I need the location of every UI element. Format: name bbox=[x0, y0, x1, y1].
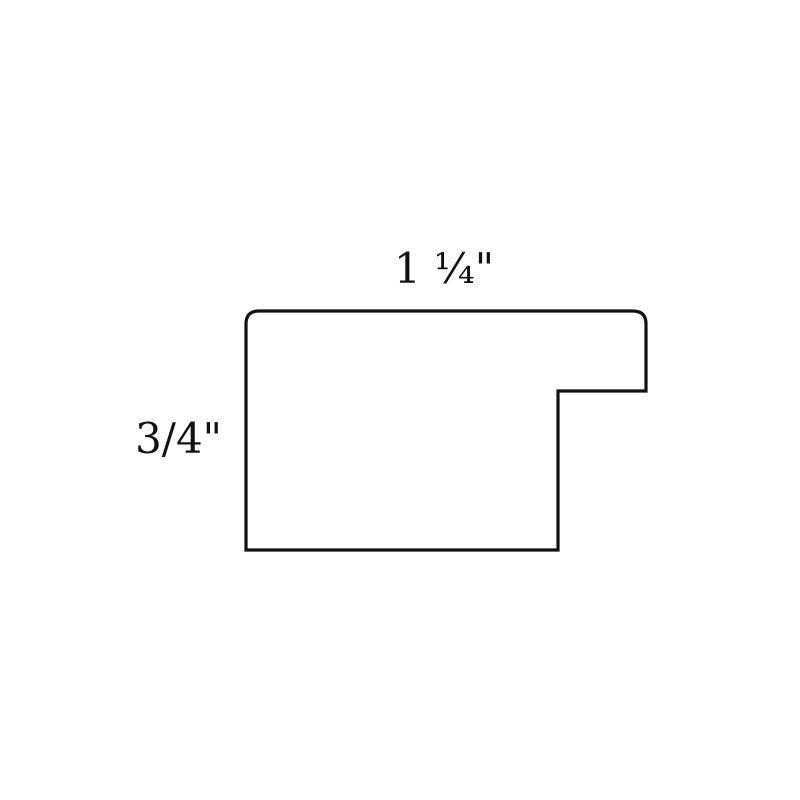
moulding-profile-outline bbox=[246, 311, 646, 550]
height-dimension-label: 3/4" bbox=[98, 418, 222, 460]
moulding-cross-section-drawing bbox=[0, 0, 800, 800]
width-dimension-label: 1 ¼" bbox=[294, 248, 594, 290]
moulding-profile-diagram: 1 ¼" 3/4" bbox=[0, 0, 800, 800]
